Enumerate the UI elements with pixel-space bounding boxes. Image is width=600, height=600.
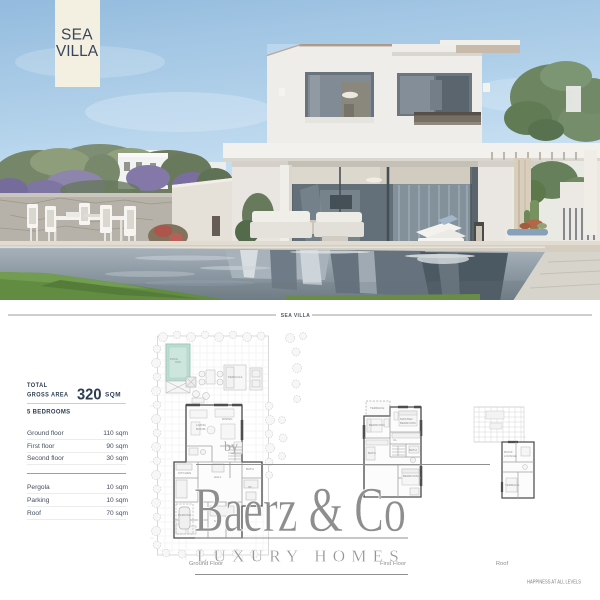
svg-text:SEA VILLA: SEA VILLA xyxy=(281,313,311,319)
svg-text:KITCHEN: KITCHEN xyxy=(178,471,191,475)
svg-text:by: by xyxy=(224,440,238,455)
svg-text:PARKING: PARKING xyxy=(178,513,192,517)
svg-text:GROSS AREA: GROSS AREA xyxy=(27,392,69,399)
svg-text:110 sqm: 110 sqm xyxy=(103,430,128,437)
svg-text:HAPPINESS AT ALL LEVELS: HAPPINESS AT ALL LEVELS xyxy=(527,580,582,586)
svg-text:VILLA: VILLA xyxy=(56,43,99,60)
svg-text:TERRACE: TERRACE xyxy=(370,406,384,410)
svg-text:CL.: CL. xyxy=(393,438,398,442)
svg-text:POOL: POOL xyxy=(170,357,179,361)
svg-text:SEA: SEA xyxy=(61,27,93,44)
svg-text:BATH: BATH xyxy=(368,451,376,455)
svg-text:BATH: BATH xyxy=(409,448,417,452)
svg-text:10 sqm: 10 sqm xyxy=(106,497,128,504)
svg-text:LOUNGE: LOUNGE xyxy=(504,454,517,458)
svg-text:Roof: Roof xyxy=(496,561,509,567)
svg-text:TERRACE: TERRACE xyxy=(505,483,519,487)
svg-text:Pergola: Pergola xyxy=(27,484,50,491)
svg-text:70 sqm: 70 sqm xyxy=(106,510,128,517)
svg-text:90 sqm: 90 sqm xyxy=(106,443,128,450)
svg-text:320: 320 xyxy=(77,387,102,404)
svg-text:SQM: SQM xyxy=(105,392,121,399)
svg-text:Second floor: Second floor xyxy=(27,455,65,462)
svg-text:5 BEDROOMS: 5 BEDROOMS xyxy=(27,409,71,416)
svg-text:10 sqm: 10 sqm xyxy=(106,484,128,491)
svg-text:LUXURY HOMES: LUXURY HOMES xyxy=(197,547,405,566)
svg-text:Baerz & Co: Baerz & Co xyxy=(194,474,406,545)
svg-text:BEDROOM: BEDROOM xyxy=(400,421,416,425)
svg-text:First floor: First floor xyxy=(27,443,55,450)
svg-text:DINING: DINING xyxy=(222,417,233,421)
svg-text:BATH: BATH xyxy=(246,467,254,471)
svg-text:Parking: Parking xyxy=(27,497,50,504)
svg-text:PERGOLA: PERGOLA xyxy=(228,375,243,379)
svg-text:Roof: Roof xyxy=(27,510,41,517)
svg-text:BEDROOM: BEDROOM xyxy=(369,423,385,427)
svg-text:30 sqm: 30 sqm xyxy=(106,455,128,462)
svg-text:ROOM: ROOM xyxy=(196,427,206,431)
svg-text:TOTAL: TOTAL xyxy=(27,382,48,389)
svg-text:Ground floor: Ground floor xyxy=(27,430,64,437)
